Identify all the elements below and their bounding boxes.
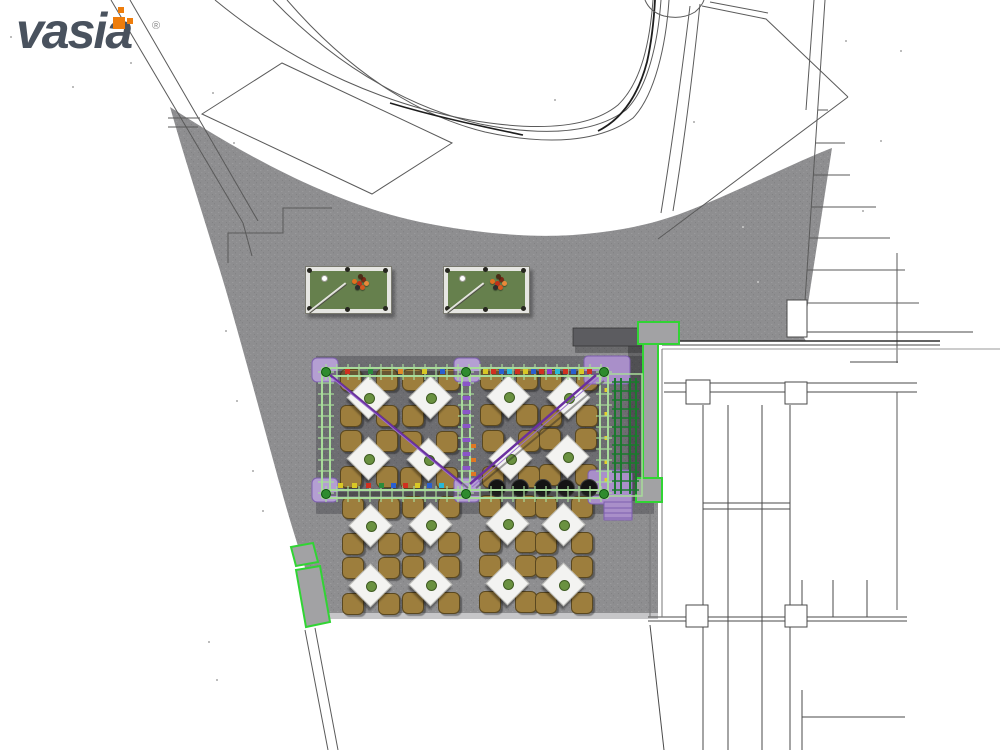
wall-bench (573, 328, 642, 346)
frame-junction (600, 368, 609, 377)
logo-pixel-icon (127, 18, 133, 24)
brand-logo: vasia ® (16, 14, 196, 84)
highlighted-wall (643, 344, 658, 480)
registered-trademark: ® (152, 20, 160, 32)
logo-wordmark: vasia (16, 6, 131, 56)
pergola-structure-layer (0, 0, 1000, 750)
frame-junction (462, 490, 471, 499)
stairs (604, 502, 632, 520)
highlighted-bench (291, 543, 318, 566)
site-plan: vasia ® (0, 0, 1000, 750)
column (787, 300, 807, 337)
frame-junction (600, 490, 609, 499)
accent-lights (338, 369, 592, 488)
highlighted-wall (638, 322, 679, 344)
logo-pixel-icon (118, 7, 124, 13)
frame-junction (462, 368, 471, 377)
highlighted-bench (296, 566, 330, 627)
frame-junction (322, 490, 331, 499)
logo-pixel-icon (113, 17, 125, 29)
frame-junction (322, 368, 331, 377)
highlighted-wall (636, 478, 662, 502)
